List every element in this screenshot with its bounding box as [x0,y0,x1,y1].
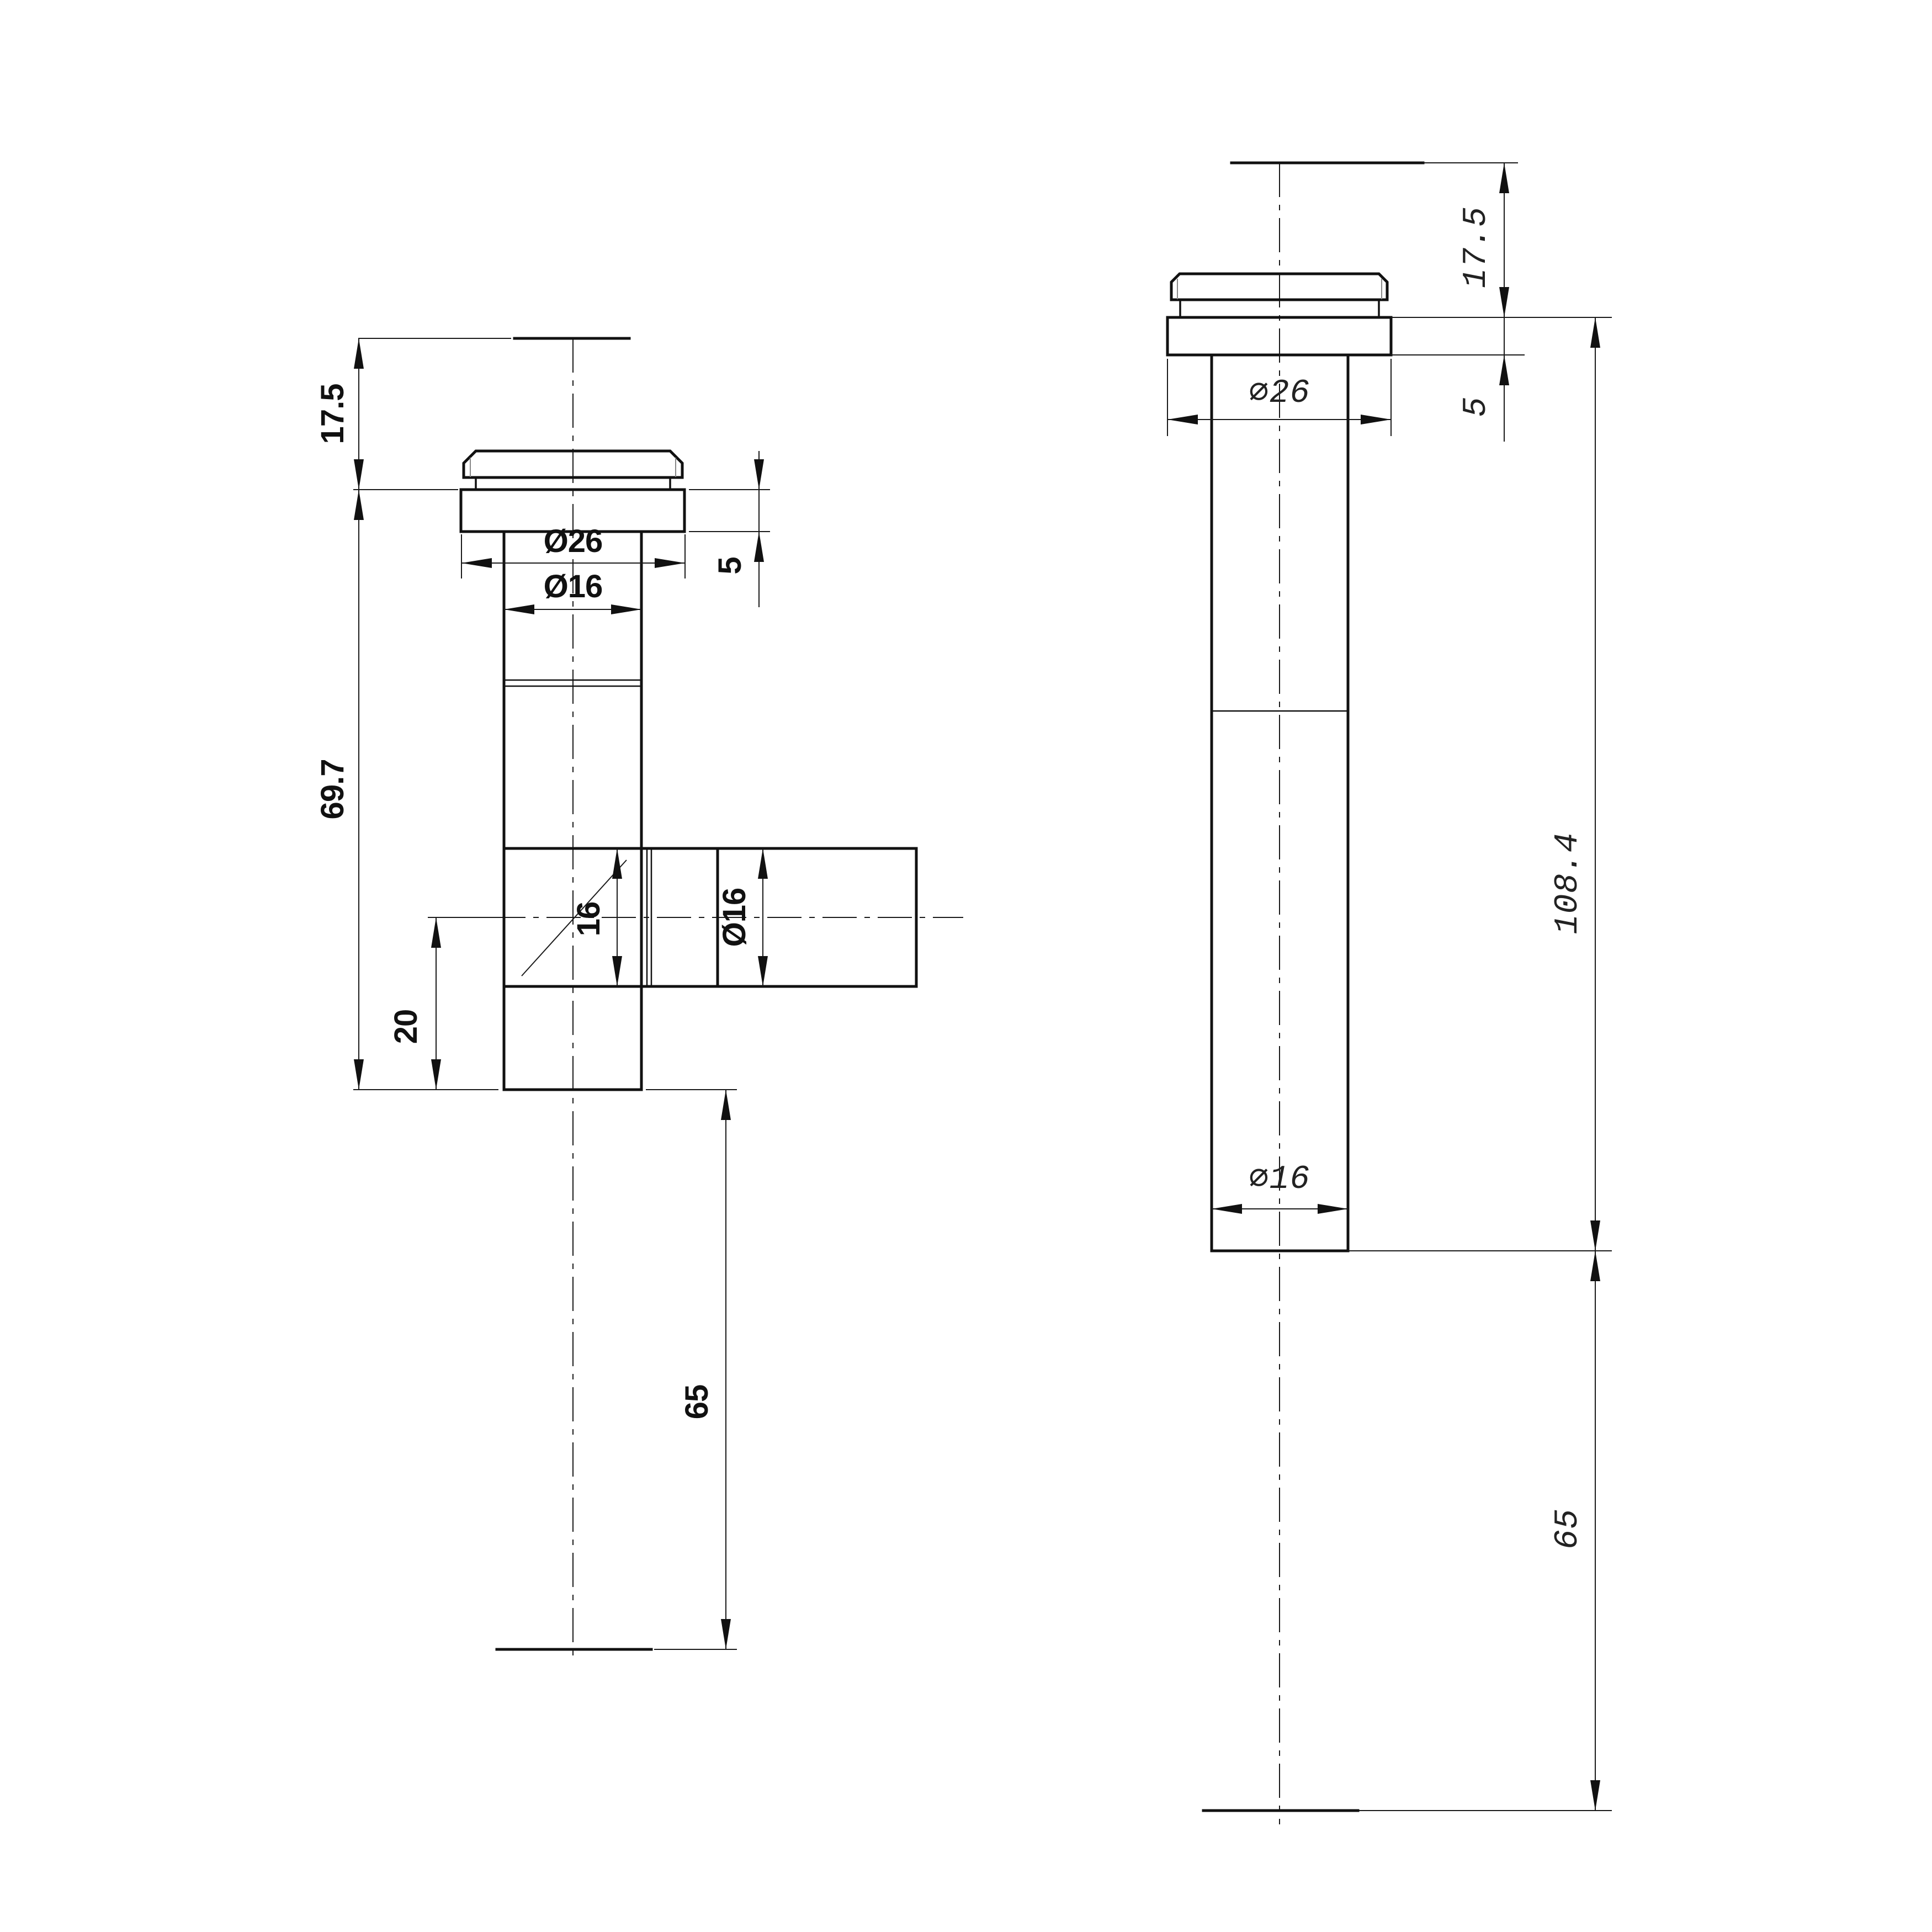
dim-front-branch-offset: 20 [388,1010,424,1044]
front-view-outline [461,338,916,1649]
dim-side-flange-thickness: 5 [1458,396,1495,417]
front-view: 17.5 69.7 Ø26 Ø16 16 Ø16 20 65 5 [315,338,963,1662]
dim-front-inlet-length: 65 [679,1385,715,1420]
dim-side-inlet-length: 65 [1549,1509,1587,1549]
side-view-arrowheads [1167,163,1600,1811]
side-view-dimension-lines [1167,163,1612,1811]
dim-front-cap-height: 17.5 [315,384,351,444]
dim-front-branch-bore: 16 [571,902,607,937]
side-view: 17.5 5 ∅26 108.4 ∅16 65 [1167,163,1612,1824]
dim-side-body-length: 108.4 [1549,832,1587,934]
dim-side-flange-diameter: ∅26 [1249,375,1310,412]
dim-front-tube-diameter: Ø16 [544,569,603,604]
dim-front-body-length: 69.7 [315,760,351,820]
dim-front-flange-thickness: 5 [712,557,748,574]
dim-side-cap-height: 17.5 [1458,206,1495,288]
technical-drawing: 17.5 69.7 Ø26 Ø16 16 Ø16 20 65 5 [0,0,1932,1932]
dim-front-flange-diameter: Ø26 [544,523,603,559]
dim-side-tube-diameter: ∅16 [1249,1161,1310,1198]
dim-front-branch-diameter: Ø16 [716,888,752,947]
